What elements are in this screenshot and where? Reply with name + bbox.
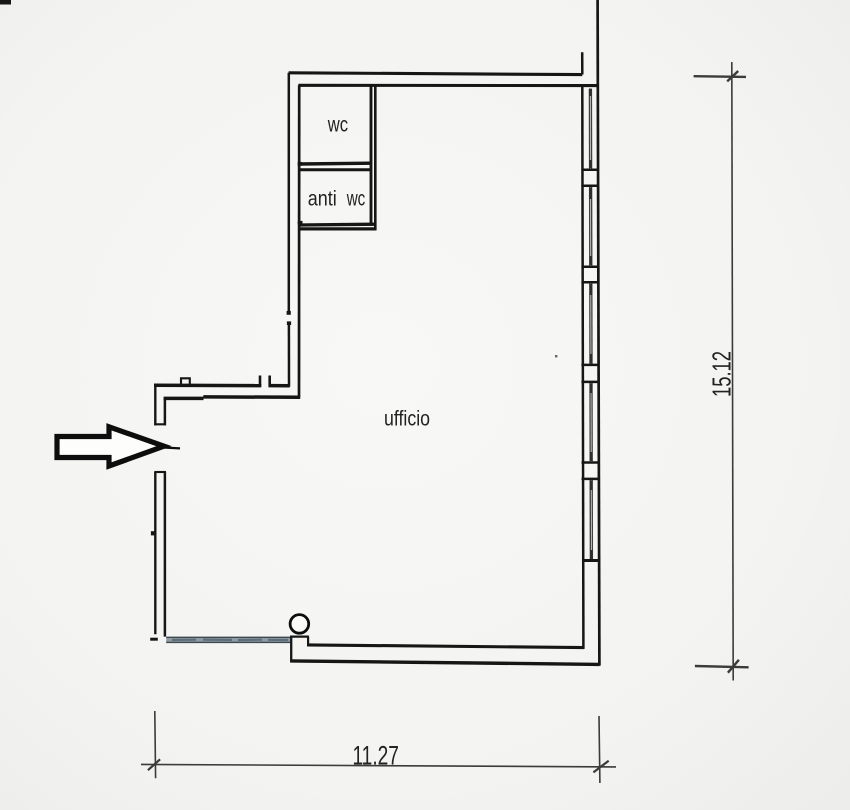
svg-text:11.27: 11.27: [352, 740, 399, 770]
svg-text:ufficio: ufficio: [384, 408, 430, 431]
svg-text:wc: wc: [327, 113, 348, 136]
svg-text:wc: wc: [346, 187, 365, 210]
svg-text:15.12: 15.12: [707, 351, 737, 397]
svg-text:anti: anti: [308, 187, 337, 210]
